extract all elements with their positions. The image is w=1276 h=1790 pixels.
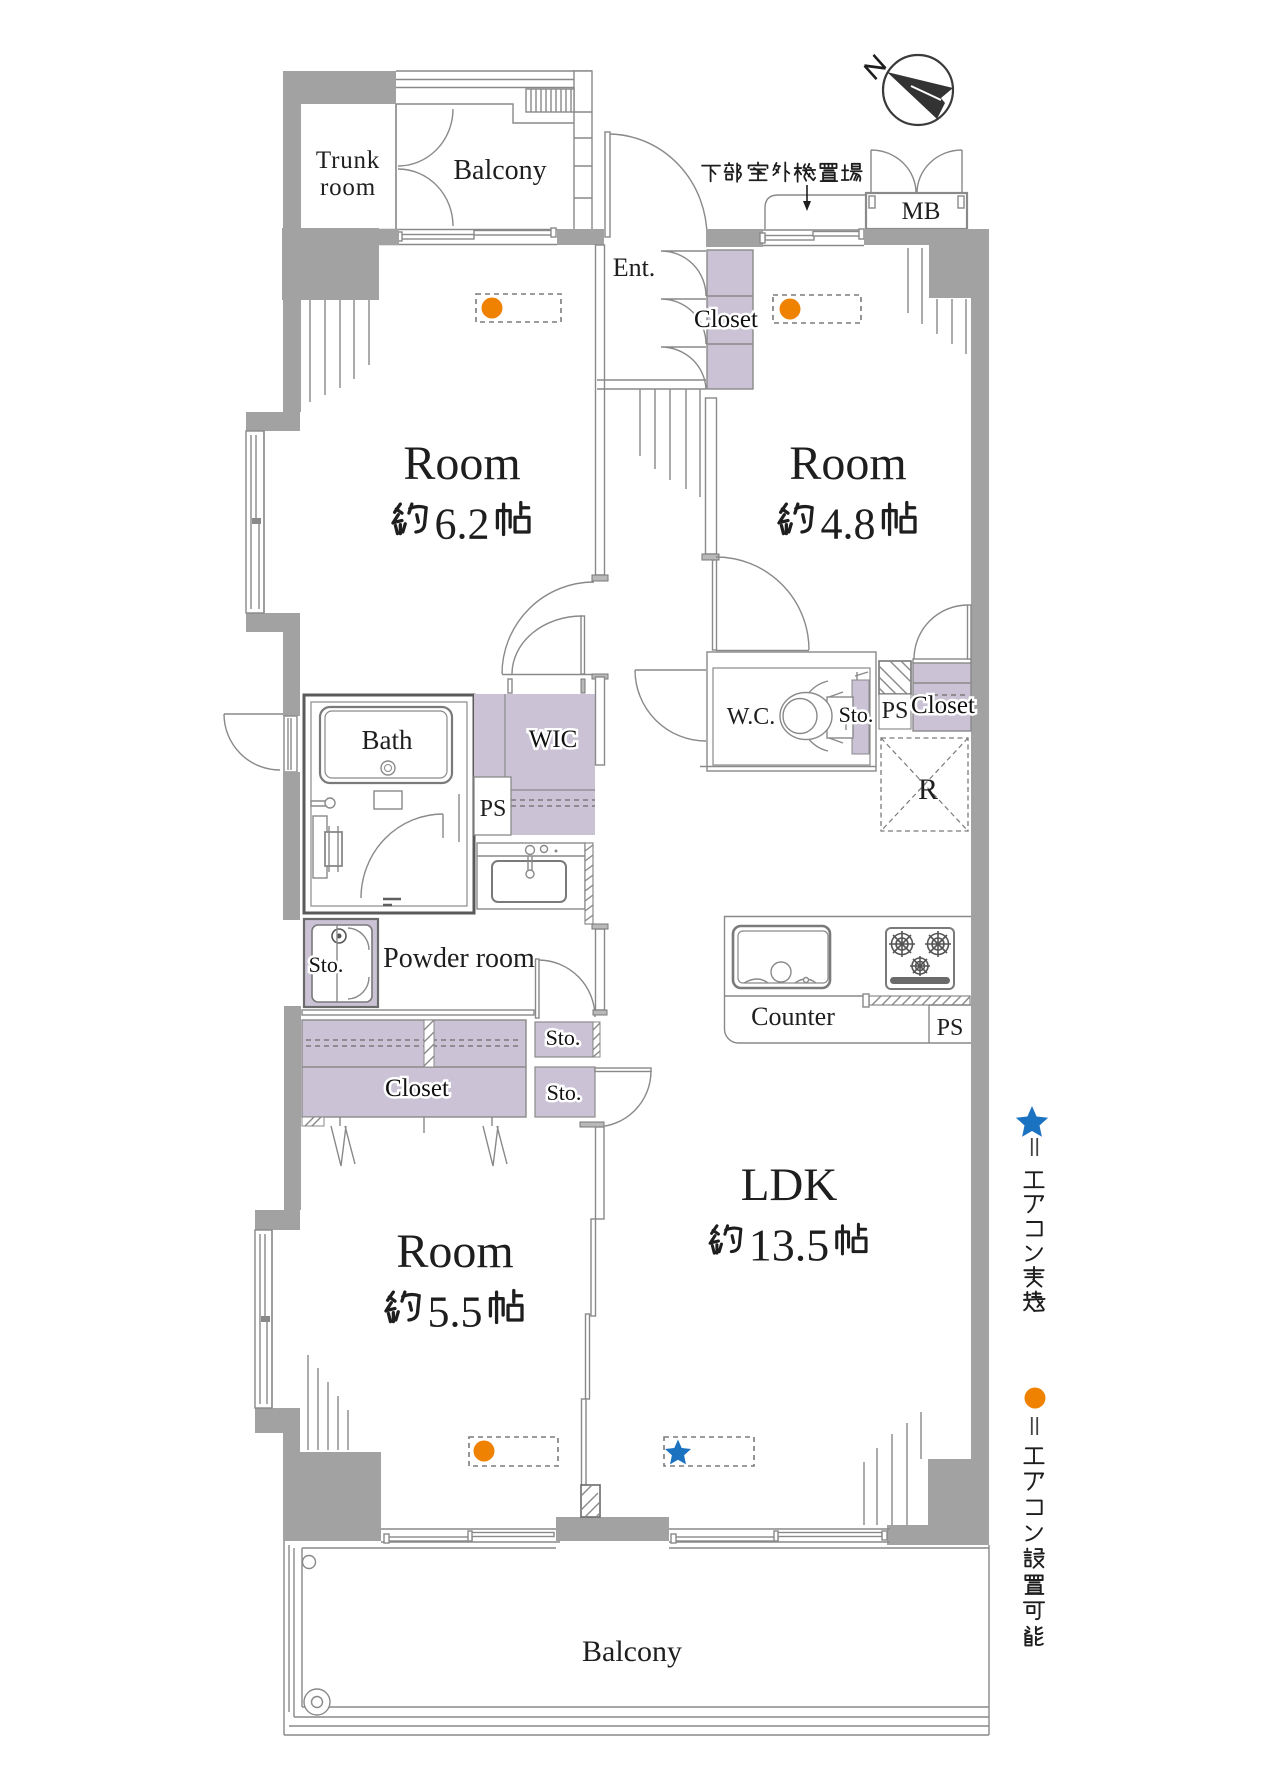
svg-text:room: room xyxy=(320,174,376,201)
svg-text:W.C.: W.C. xyxy=(727,704,775,730)
svg-text:Sto.: Sto. xyxy=(547,1080,582,1105)
svg-text:Closet: Closet xyxy=(911,692,975,719)
svg-text:MB: MB xyxy=(902,198,941,225)
svg-text:13.5: 13.5 xyxy=(749,1220,830,1271)
svg-text:5.5: 5.5 xyxy=(428,1288,483,1337)
svg-text:Balcony: Balcony xyxy=(453,155,546,186)
svg-text:6.2: 6.2 xyxy=(435,500,490,549)
svg-text:Room: Room xyxy=(396,1225,513,1278)
svg-text:Balcony: Balcony xyxy=(582,1635,682,1668)
svg-text:PS: PS xyxy=(937,1015,964,1041)
svg-text:Room: Room xyxy=(403,437,520,490)
svg-text:Counter: Counter xyxy=(751,1002,835,1031)
svg-text:Sto.: Sto. xyxy=(839,702,874,727)
svg-text:Room: Room xyxy=(789,437,906,490)
svg-text:WIC: WIC xyxy=(529,726,578,753)
svg-text:PS: PS xyxy=(882,698,909,724)
svg-text:Closet: Closet xyxy=(385,1075,449,1102)
svg-text:Ent.: Ent. xyxy=(613,253,656,282)
svg-text:LDK: LDK xyxy=(741,1159,838,1211)
svg-text:Bath: Bath xyxy=(362,725,413,755)
svg-text:4.8: 4.8 xyxy=(821,500,876,549)
svg-text:R: R xyxy=(918,773,938,806)
svg-text:Sto.: Sto. xyxy=(309,952,344,977)
svg-text:Powder room: Powder room xyxy=(383,943,535,974)
svg-text:PS: PS xyxy=(480,796,507,822)
svg-text:Closet: Closet xyxy=(694,306,758,333)
svg-text:Trunk: Trunk xyxy=(316,147,380,174)
svg-text:Sto.: Sto. xyxy=(546,1025,581,1050)
